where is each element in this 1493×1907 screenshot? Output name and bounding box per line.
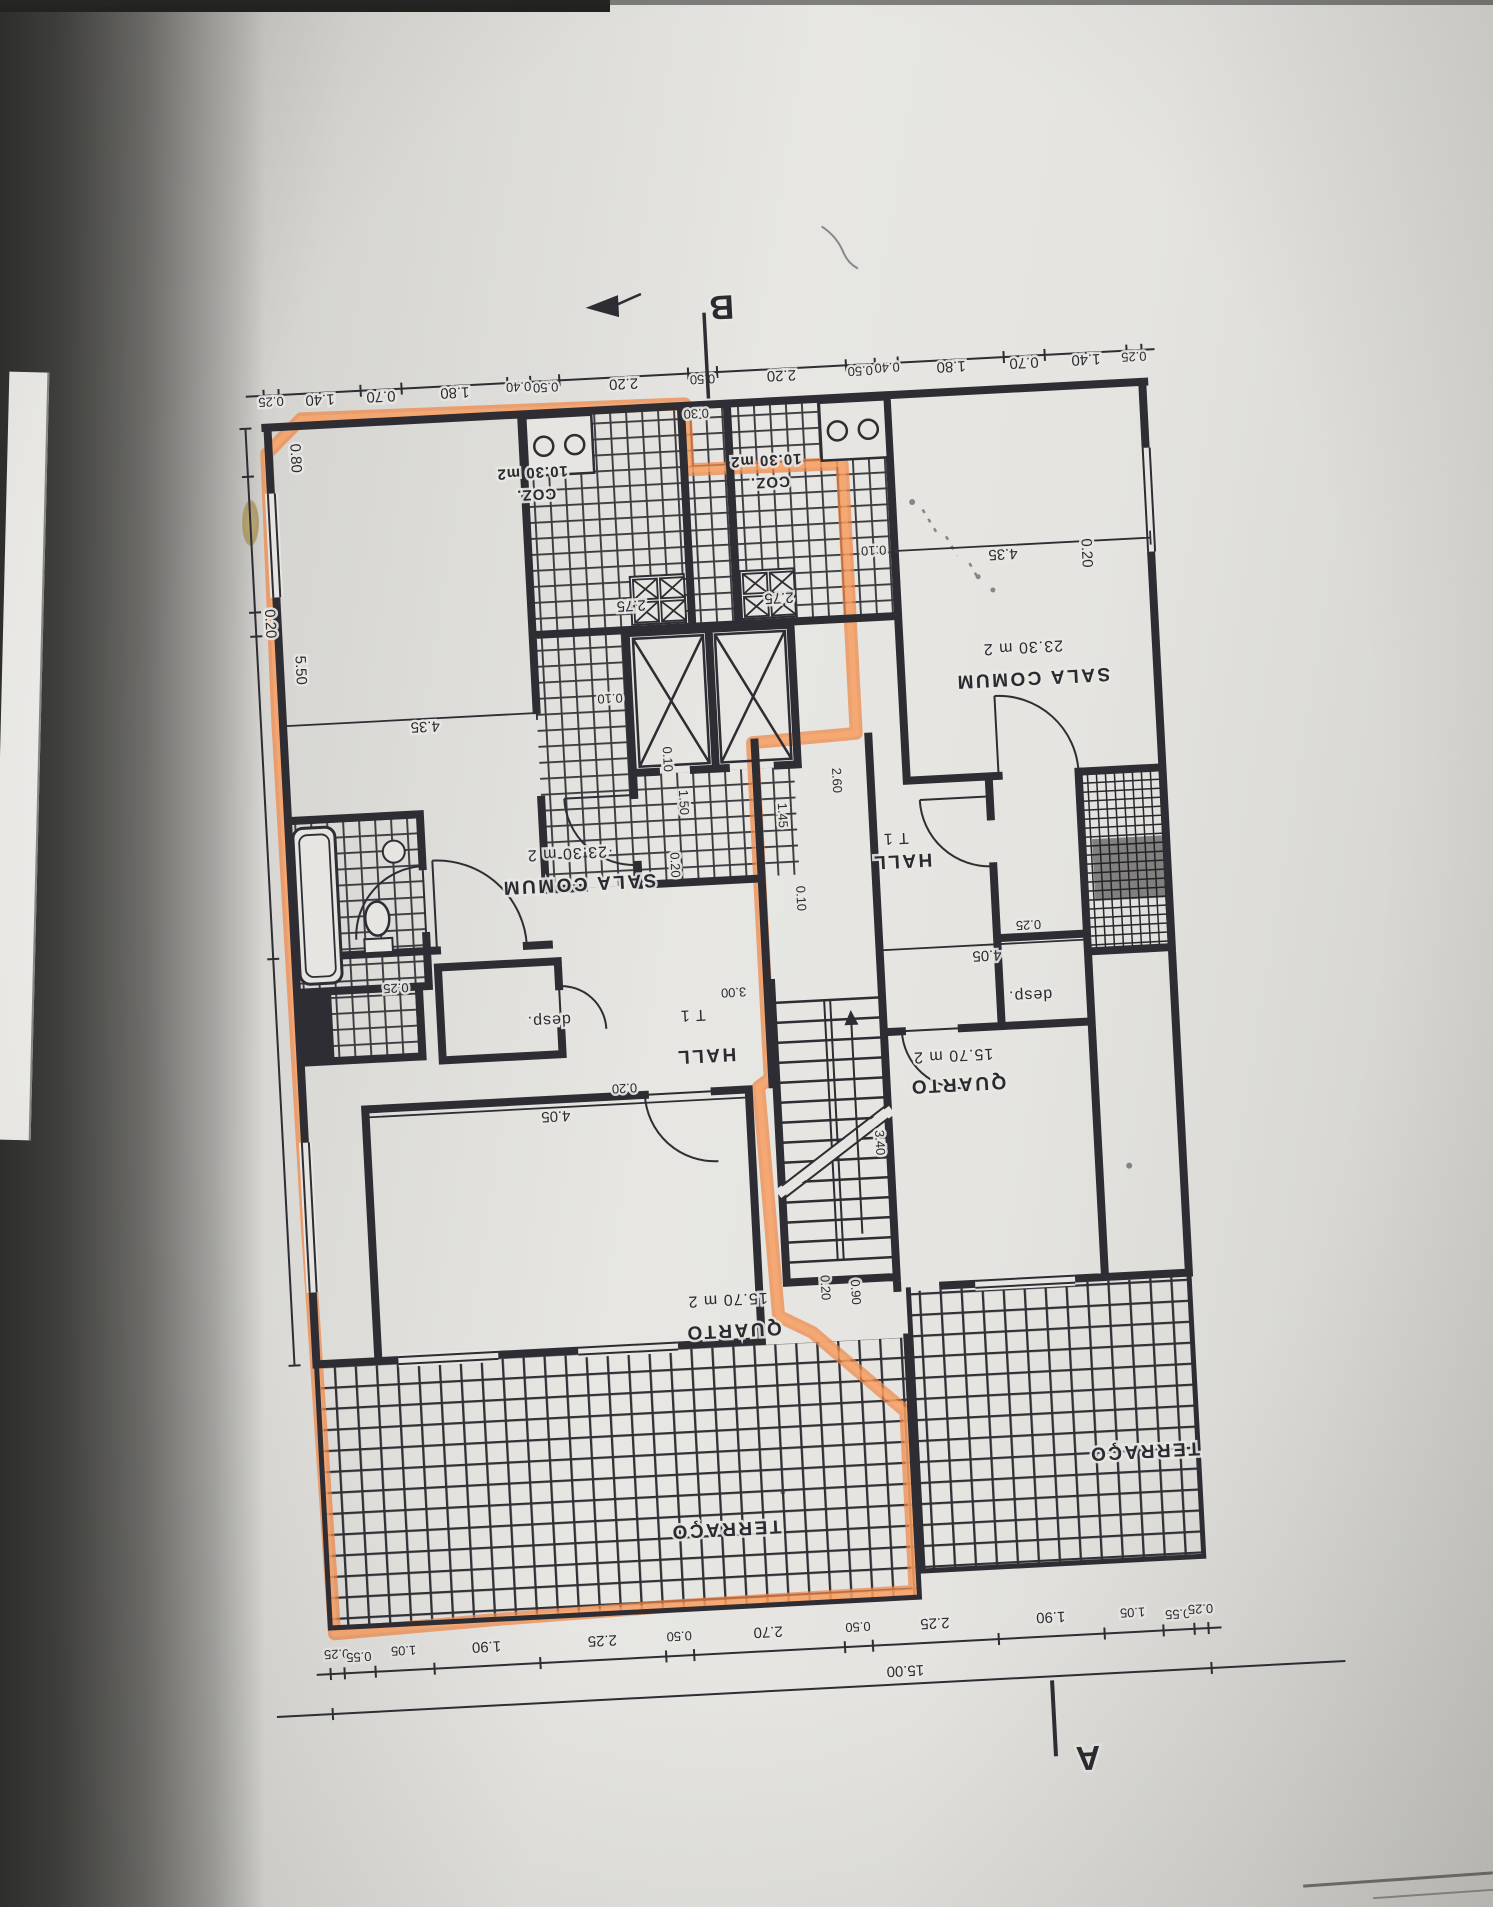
section-a-label: A <box>1075 1738 1102 1777</box>
room-name-label: desp. <box>1008 985 1053 1004</box>
dim-label: 2.75 <box>616 596 646 615</box>
room-name-label: SALA COMUM <box>954 663 1110 692</box>
room-name-label: HALL <box>871 848 933 872</box>
washbasin <box>382 840 405 863</box>
dim-label: 0.10 <box>793 885 809 911</box>
dim-label: 0.50 <box>847 363 873 379</box>
dim-label: 1.80 <box>440 383 470 402</box>
dim-label: 1.45 <box>775 802 791 828</box>
dim-label: 3.40 <box>872 1130 888 1156</box>
dim-label: 0.25 <box>383 980 409 996</box>
lobby-tiles <box>636 767 799 883</box>
dim-label: 0.55 <box>1165 1606 1191 1622</box>
dim-label: 2.20 <box>766 366 796 385</box>
dim-label: 3.00 <box>721 984 747 1000</box>
dim-label: 1.50 <box>676 789 692 815</box>
room-name-label: SALA COMUM <box>501 869 657 898</box>
door-sala-left <box>432 856 527 951</box>
dim-label: 0.70 <box>1009 353 1039 372</box>
dim-label: 0.20 <box>667 852 683 878</box>
toilet-tank <box>364 938 393 953</box>
dim-label: 1.40 <box>305 390 335 409</box>
terrace-left-tiles <box>317 1338 920 1629</box>
dim-label: 2.25 <box>920 1614 950 1633</box>
dim-label: 0.50 <box>666 1628 692 1644</box>
room-area-label: 23.30 m 2 <box>982 636 1063 657</box>
dim-line-total <box>277 1655 1346 1723</box>
dim-label-total: 15.00 <box>886 1661 924 1680</box>
dim-label: 5.50 <box>291 655 310 685</box>
section-b-label: B <box>708 287 735 326</box>
room-name-label: COZ. <box>516 485 557 504</box>
dim-label: 1.05 <box>391 1643 417 1659</box>
dim-label: 0.80 <box>286 443 305 473</box>
dim-label: 0.25 <box>1121 349 1147 365</box>
dim-label: 0.25 <box>1187 1601 1213 1617</box>
dim-label: 0.70 <box>366 387 396 406</box>
dim-label: 4.35 <box>988 545 1018 564</box>
room-name-label: COZ. <box>750 472 791 491</box>
room-area-label: 15.70 m 2 <box>687 1289 768 1310</box>
dim-label: 0.10 <box>597 690 623 706</box>
dim-label: 2.70 <box>753 1622 783 1641</box>
room-area-label: 10.30 m2 <box>496 462 568 483</box>
north-arrow-tail <box>615 294 641 305</box>
room-type-label: T 1 <box>679 1006 706 1024</box>
dim-label: 0.20 <box>611 1080 637 1096</box>
dim-label: 1.90 <box>1036 1608 1066 1627</box>
dim-label: 0.20 <box>818 1275 834 1301</box>
duct-solid <box>299 993 335 1063</box>
dim-label: 0.20 <box>261 609 280 639</box>
dim-label: 4.05 <box>972 946 1002 965</box>
bath-right-smudge <box>1092 835 1165 901</box>
dim-label: 2.60 <box>829 767 845 793</box>
door-sala-right <box>994 692 1078 776</box>
dim-label: 0.50 <box>845 1619 871 1635</box>
dim-label: 1.40 <box>1071 350 1101 369</box>
dim-label: 4.35 <box>410 717 440 736</box>
dim-label: 0.50 <box>689 371 715 387</box>
section-a-line <box>1052 1680 1056 1756</box>
dim-sala-left <box>281 706 537 733</box>
dim-label: 1.80 <box>936 357 966 376</box>
dim-label: 0.25 <box>258 394 284 410</box>
room-name-label: desp. <box>526 1011 571 1030</box>
dim-label: 1.05 <box>1120 1604 1146 1620</box>
dim-label: 2.20 <box>609 374 639 393</box>
dim-label: 0.10 <box>861 542 887 558</box>
dim-label: 0.40 <box>506 379 532 395</box>
dim-sala-right <box>894 531 1150 558</box>
dim-label: 1.90 <box>471 1637 501 1656</box>
dim-label: 4.05 <box>541 1107 571 1126</box>
dim-label: 0.25 <box>324 1646 350 1662</box>
room-name-label: QUARTO <box>684 1317 782 1343</box>
dim-label: 2.25 <box>587 1631 617 1650</box>
dim-label: 0.20 <box>1077 538 1096 568</box>
dim-label: 0.50 <box>533 379 559 395</box>
room-area-label: ·23.30 m 2 <box>526 842 613 864</box>
north-arrow-icon <box>585 295 619 319</box>
terrace-right-tiles <box>908 1277 1203 1571</box>
room-area-label: 15.70 m 2 <box>913 1045 994 1066</box>
dim-label: 0.10 <box>660 746 676 772</box>
dim-label: 2.75 <box>764 588 794 607</box>
dim-label: 0.55 <box>346 1649 372 1665</box>
floorplan-photo: 0.25 1.40 0.70 1.80 0.40 0.50 2.20 0.50 … <box>0 0 1493 1907</box>
toilet <box>364 901 390 936</box>
dim-label: 0.25 <box>1015 917 1041 933</box>
dim-label: 0.30 <box>683 406 709 422</box>
dim-label: 0.90 <box>848 1279 864 1305</box>
floorplan-svg: 0.25 1.40 0.70 1.80 0.40 0.50 2.20 0.50 … <box>0 0 1493 1907</box>
room-name-label: HALL <box>675 1043 737 1067</box>
dim-label: 0.40 <box>874 360 900 376</box>
plan: 0.25 1.40 0.70 1.80 0.40 0.50 2.20 0.50 … <box>200 203 1350 1819</box>
room-type-label: T 1 <box>882 829 909 847</box>
